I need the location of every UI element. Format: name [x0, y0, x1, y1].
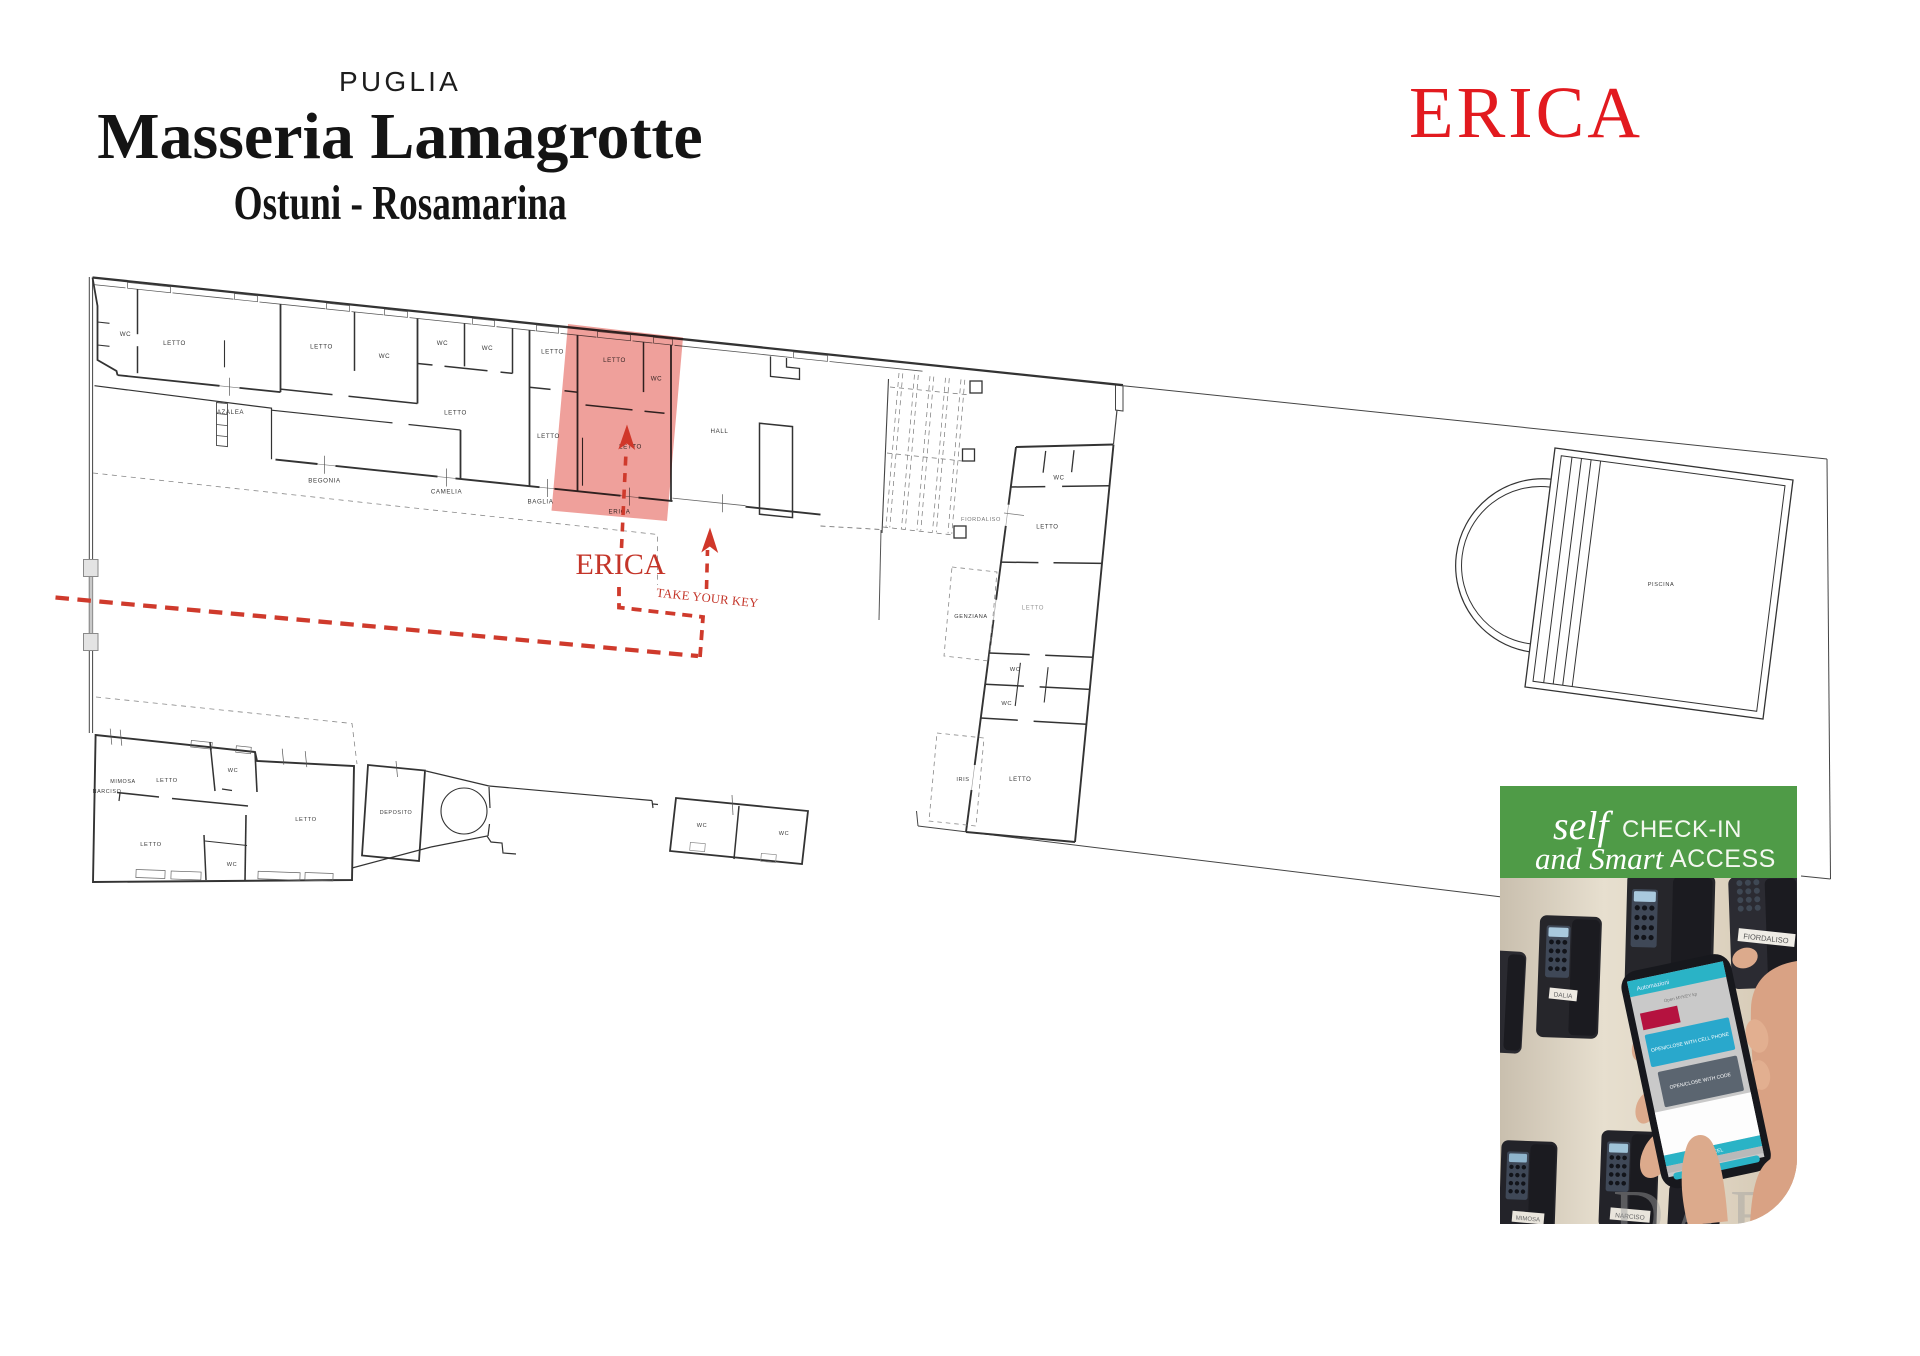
svg-text:LETTO: LETTO [295, 817, 317, 823]
svg-text:LETTO: LETTO [541, 349, 564, 356]
svg-text:LETTO: LETTO [537, 433, 560, 440]
svg-text:WC: WC [779, 831, 790, 837]
svg-text:FIORDALISO: FIORDALISO [961, 517, 1001, 523]
svg-text:ERICA: ERICA [576, 548, 666, 581]
svg-text:WC: WC [437, 340, 449, 347]
svg-text:LETTO: LETTO [140, 842, 162, 848]
svg-text:CAMELIA: CAMELIA [431, 489, 463, 496]
svg-text:LETTO: LETTO [1009, 777, 1031, 783]
svg-text:PISCINA: PISCINA [1648, 582, 1675, 588]
svg-text:LETTO: LETTO [1022, 606, 1044, 612]
svg-text:WC: WC [1053, 475, 1064, 481]
svg-text:AZALEA: AZALEA [217, 409, 245, 416]
svg-text:CHECK-IN: CHECK-IN [1622, 816, 1742, 843]
svg-text:LETTO: LETTO [1036, 525, 1058, 531]
svg-text:WC: WC [120, 331, 132, 338]
svg-text:LETTO: LETTO [310, 343, 333, 350]
svg-text:WC: WC [482, 345, 494, 352]
svg-text:TAKE YOUR KEY: TAKE YOUR KEY [656, 586, 759, 611]
svg-text:WC: WC [228, 768, 239, 774]
svg-text:ACCESS: ACCESS [1670, 845, 1776, 873]
svg-text:NARCISO: NARCISO [93, 789, 122, 795]
svg-text:BAGLIA: BAGLIA [528, 498, 554, 505]
svg-text:LETTO: LETTO [444, 409, 467, 416]
svg-text:IRIS: IRIS [956, 777, 969, 783]
svg-text:WC: WC [227, 862, 238, 868]
svg-text:WC: WC [379, 353, 391, 360]
svg-text:DEPOSITO: DEPOSITO [380, 810, 413, 816]
svg-text:WC: WC [697, 823, 708, 829]
svg-text:GENZIANA: GENZIANA [954, 614, 987, 620]
svg-text:WC: WC [1001, 701, 1012, 707]
svg-text:BEGONIA: BEGONIA [308, 478, 341, 485]
svg-text:LETTO: LETTO [156, 778, 178, 784]
svg-text:HALL: HALL [711, 428, 729, 435]
svg-text:and Smart: and Smart [1535, 841, 1665, 876]
svg-text:LETTO: LETTO [163, 340, 186, 347]
svg-text:MIMOSA: MIMOSA [110, 779, 135, 785]
